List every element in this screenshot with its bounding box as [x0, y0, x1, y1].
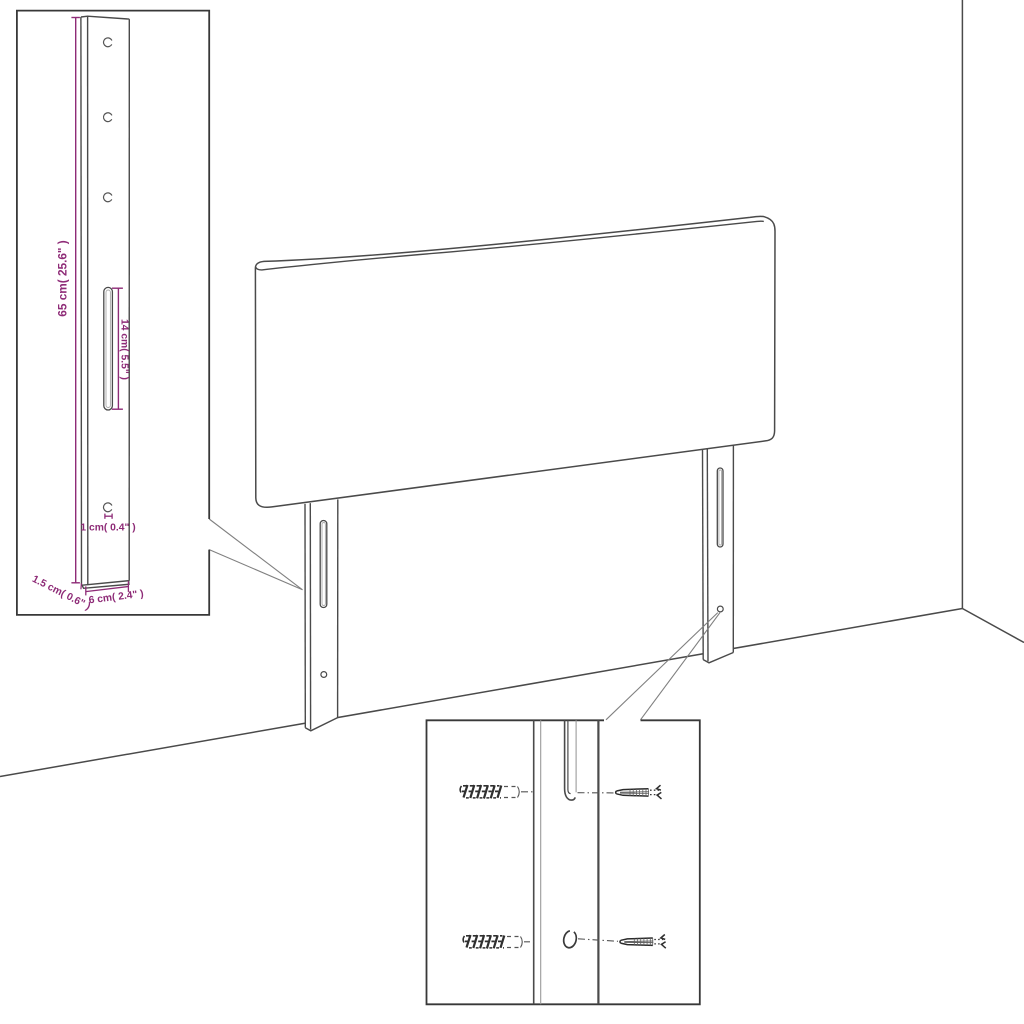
svg-text:1 cm( 0.4" ): 1 cm( 0.4" )	[80, 523, 135, 534]
svg-text:65 cm( 25.6" ): 65 cm( 25.6" )	[56, 240, 70, 316]
svg-text:14 cm( 5.5" ): 14 cm( 5.5" )	[118, 319, 129, 380]
